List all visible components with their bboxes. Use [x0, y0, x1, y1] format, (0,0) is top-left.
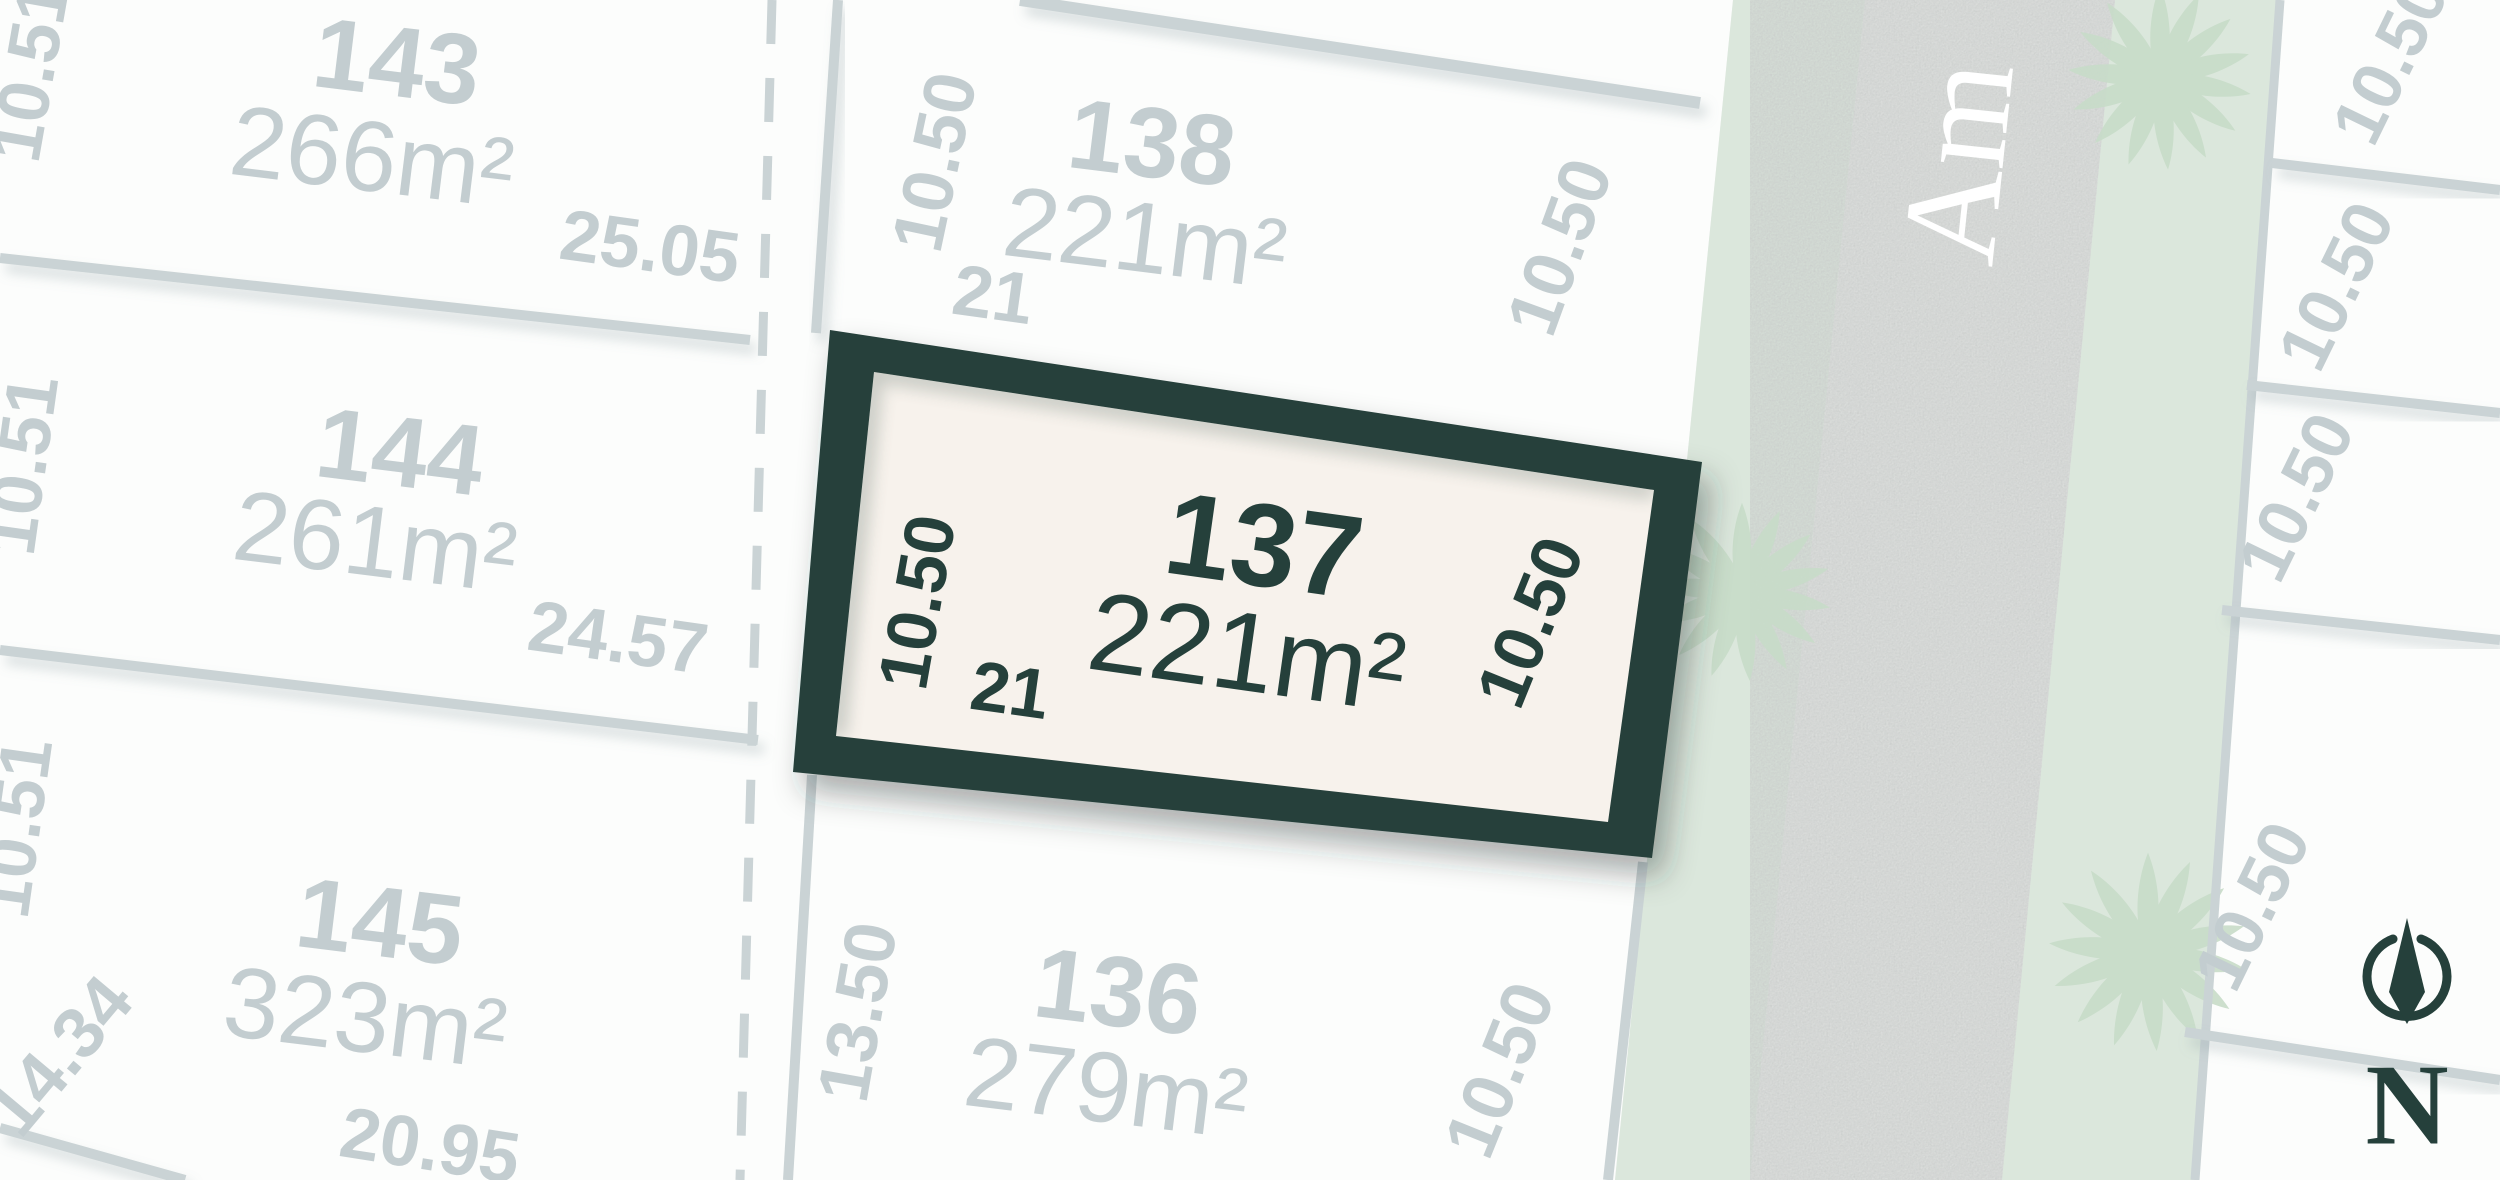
north-label: N	[2365, 1042, 2448, 1169]
dim-frontage: 21	[948, 250, 1038, 340]
dim-frontage: 21	[966, 646, 1054, 734]
street-name-label: Am	[1874, 54, 2043, 271]
north-compass: N	[2365, 918, 2448, 1169]
lot-map-canvas: Am 143 266m² 25.05 10.51 144 261m² 24.57…	[0, 0, 2500, 1180]
masterplan-stage: Am 143 266m² 25.05 10.51 144 261m² 24.57…	[0, 0, 2500, 1180]
